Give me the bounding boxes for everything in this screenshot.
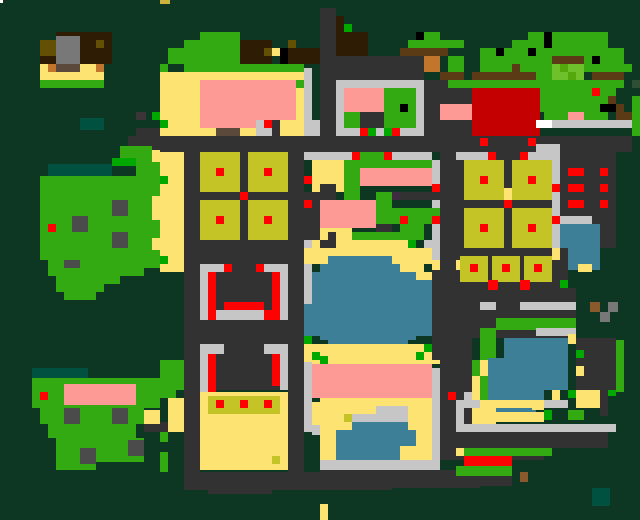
map-tile-sand (184, 72, 304, 80)
map-tile-red (264, 216, 272, 224)
map-tile-sand (336, 240, 392, 248)
map-tile-grass (56, 276, 120, 284)
map-tile-red (216, 400, 224, 408)
map-tile-wood (288, 48, 320, 64)
map-tile-green2 (160, 176, 168, 184)
map-tile-pink (360, 168, 432, 186)
map-tile-mdgreen (560, 64, 568, 72)
map-tile-grass (136, 158, 152, 176)
map-tile-road (144, 424, 160, 432)
map-tile-red (224, 302, 264, 310)
map-tile-sbrown (608, 96, 616, 104)
map-tile-sand (392, 240, 408, 248)
map-tile-road (320, 184, 336, 200)
map-tile-grass (184, 40, 240, 48)
map-tile-grass (40, 176, 160, 260)
map-tile-road (440, 260, 456, 360)
map-tile-sand (152, 238, 160, 250)
map-tile-swalk (456, 152, 488, 160)
map-tile-sand (312, 240, 320, 248)
map-tile-grass (64, 292, 96, 300)
map-tile-red (600, 184, 608, 192)
map-tile-white (536, 120, 552, 128)
map-tile-purple (392, 192, 400, 200)
map-tile-grass (408, 40, 464, 48)
map-tile-red (216, 216, 224, 224)
map-tile-grass (200, 32, 240, 40)
map-tile-road (320, 240, 336, 248)
map-tile-tan (424, 56, 440, 72)
map-tile-sand (456, 448, 464, 456)
map-tile-swalk (280, 344, 288, 390)
map-tile-swalk (392, 152, 432, 160)
map-tile-red (400, 216, 408, 224)
map-tile-pink (440, 104, 472, 120)
map-tile-sbrown (624, 112, 632, 120)
map-tile-swalk (216, 310, 264, 320)
map-tile-grass (160, 432, 168, 442)
map-tile-swalk (352, 414, 408, 422)
map-tile-olive (40, 40, 56, 56)
map-tile-red (216, 168, 224, 176)
map-tile-red (568, 168, 584, 176)
map-tile-green2 (152, 112, 160, 120)
map-tile-swalk (336, 80, 424, 88)
map-tile-road (480, 476, 512, 486)
map-tile-green2 (320, 356, 328, 364)
map-tile-grass (160, 452, 168, 472)
map-tile-sand (576, 390, 600, 408)
map-tile-gray (56, 36, 80, 64)
map-tile-black (496, 48, 504, 56)
map-tile-red (392, 128, 400, 136)
map-tile-olive (96, 40, 104, 48)
map-tile-door (216, 128, 240, 136)
map-tile-red (568, 200, 584, 208)
map-tile-sand (532, 400, 544, 410)
map-tile-gray (608, 302, 618, 312)
map-tile-green2 (312, 352, 320, 360)
map-tile-sbrown (512, 64, 520, 72)
map-tile-grass (480, 64, 512, 72)
map-tile-red (470, 264, 478, 272)
map-tile-swalk (560, 216, 592, 224)
map-tile-water (304, 304, 432, 336)
map-tile-pink (320, 200, 376, 228)
map-tile-teal (592, 488, 610, 506)
map-tile-road (312, 192, 320, 240)
map-tile-pink (568, 112, 584, 120)
map-tile-swalk (536, 144, 560, 152)
map-tile-sand (400, 264, 424, 272)
map-tile-grass (632, 96, 640, 136)
map-tile-red (304, 176, 312, 184)
map-tile-red (256, 264, 264, 272)
map-tile-road (400, 192, 440, 200)
map-tile-sand (304, 256, 328, 264)
map-tile-red (528, 176, 536, 184)
map-tile-olive (288, 40, 296, 48)
map-tile-swalk (464, 400, 480, 408)
map-tile-sand (336, 184, 344, 192)
map-tile-black (528, 48, 536, 56)
map-tile-green2 (608, 390, 616, 396)
map-tile-red (272, 354, 280, 386)
map-tile-red (264, 400, 272, 408)
map-tile-road (272, 120, 280, 128)
map-tile-grass (48, 268, 144, 276)
map-tile-grass (536, 72, 552, 80)
map-tile-swalk (376, 406, 408, 414)
map-tile-green2 (160, 256, 168, 264)
map-tile-sbrown (616, 104, 624, 120)
map-tile-tan (96, 64, 104, 72)
map-tile-black (544, 32, 552, 48)
map-tile-red (224, 264, 232, 272)
map-tile-sand (272, 48, 280, 56)
map-tile-tree (72, 216, 88, 232)
map-tile-red (240, 192, 248, 200)
map-tile-sand (320, 228, 352, 240)
map-tile-water (320, 264, 400, 272)
map-tile-grass (456, 448, 552, 456)
map-tile-pink (312, 364, 432, 398)
map-tile-sand (504, 188, 512, 200)
map-tile-grass (56, 284, 104, 292)
map-tile-swalk (304, 128, 320, 136)
map-tile-black (600, 104, 616, 112)
map-tile-swalk (552, 120, 632, 128)
map-tile-water (312, 272, 424, 280)
map-tile-byel (344, 414, 352, 422)
map-tile-grass (568, 410, 584, 420)
map-tile-sand (480, 360, 488, 376)
map-tile-sand (296, 88, 304, 120)
map-tile-sand (152, 196, 160, 220)
map-tile-red (520, 280, 530, 290)
map-tile-swalk (304, 362, 312, 432)
map-tile-red (480, 176, 488, 184)
map-tile-red (208, 310, 216, 320)
map-tile-red (432, 184, 440, 192)
map-tile-tree (112, 232, 128, 248)
map-tile-swalk (424, 240, 432, 248)
map-tile-grass (480, 56, 552, 64)
map-tile-road (184, 240, 320, 260)
map-tile-road (272, 128, 280, 136)
map-tile-door (56, 64, 80, 72)
map-tile-green2 (368, 128, 376, 136)
map-tile-green2 (416, 352, 424, 360)
map-tile-red (240, 400, 248, 408)
map-tile-pink (200, 80, 296, 120)
map-tile-road (160, 422, 168, 432)
map-tile-lbrown (590, 302, 600, 312)
map-tile-sbrown (552, 56, 584, 64)
map-tile-swalk (416, 88, 424, 128)
map-tile-red (488, 280, 498, 290)
map-tile-road (376, 224, 392, 232)
map-tile-swalk (256, 128, 272, 136)
map-tile-swalk (200, 264, 208, 320)
map-tile-sbrown (592, 72, 624, 80)
map-tile-road (456, 338, 472, 364)
map-tile-red (464, 456, 512, 466)
map-tile-sbrown (480, 72, 536, 80)
map-tile-swalk (544, 400, 568, 408)
map-tile-tree (112, 200, 128, 216)
map-tile-teal (48, 164, 112, 176)
map-tile-teal (80, 118, 104, 130)
map-tile-red (432, 216, 440, 224)
map-tile-gold (160, 0, 170, 4)
map-tile-sand (320, 504, 328, 520)
map-tile-grass (448, 80, 624, 88)
map-tile-sand (160, 128, 216, 136)
map-tile-sand (336, 248, 432, 256)
map-tile-pink (64, 384, 136, 405)
map-tile-green2 (424, 344, 432, 352)
map-tile-grass (544, 112, 568, 120)
map-tile-green2 (408, 240, 416, 248)
map-tile-tan (48, 64, 56, 72)
map-tile-grass (456, 466, 512, 476)
map-tile-road (432, 270, 440, 360)
map-tile-swalk (304, 264, 312, 304)
map-tile-lbrown (520, 472, 528, 482)
map-tile-sand (280, 128, 304, 136)
map-tile-red (264, 120, 272, 128)
map-tile-green2 (344, 24, 352, 32)
map-tile-water (328, 256, 392, 264)
map-tile-grass (40, 408, 144, 424)
map-tile-grass (480, 328, 496, 360)
map-tile-water (336, 430, 416, 446)
map-tile-sbrown (400, 48, 448, 56)
map-tile-red (448, 392, 456, 400)
map-tile-red (352, 152, 360, 160)
map-tile-red (592, 88, 600, 96)
map-tile-road (208, 488, 272, 494)
map-tile-red (504, 200, 512, 208)
map-tile-bg (160, 272, 184, 360)
map-tile-grass (48, 424, 136, 438)
map-tile-road (184, 390, 200, 472)
map-tile-water (352, 422, 408, 430)
map-tile-swalk (256, 120, 264, 128)
map-tile-sand (168, 398, 184, 432)
map-tile-grass (424, 32, 440, 40)
map-tile-road (496, 152, 520, 160)
map-tile-red (360, 128, 368, 136)
map-tile-road (600, 390, 608, 416)
map-tile-red (600, 168, 608, 176)
map-tile-red (600, 200, 608, 208)
map-tile-water (336, 446, 400, 460)
map-tile-road (584, 432, 608, 448)
map-tile-sand (144, 410, 160, 424)
map-tile-grass (472, 360, 480, 376)
map-tile-swalk (320, 460, 440, 470)
map-tile-byel (272, 456, 280, 464)
map-tile-road (360, 112, 384, 128)
map-tile-sand (168, 120, 200, 128)
map-tile-sand (312, 160, 320, 192)
map-tile-olive (264, 48, 272, 56)
map-tile-sand (432, 260, 440, 270)
map-tile-red (264, 168, 272, 176)
map-tile-road (320, 56, 424, 80)
map-tile-grass (528, 32, 608, 40)
map-tile-red (552, 216, 560, 224)
map-tile-road (320, 470, 392, 490)
map-tile-swalk (304, 68, 312, 130)
map-tile-red (502, 264, 510, 272)
map-tile-water (504, 338, 568, 390)
map-tile-swalk (304, 152, 352, 160)
map-tile-grass (616, 340, 624, 392)
map-tile-pink (200, 120, 256, 128)
map-tile-red (520, 152, 528, 160)
map-tile-sand (568, 334, 576, 344)
map-tile-grass (40, 80, 104, 88)
map-tile-green2 (112, 158, 136, 166)
map-tile-sand (480, 400, 532, 408)
map-tile-grass (520, 64, 552, 72)
map-tile-red (264, 310, 272, 320)
map-tile-sand (552, 248, 560, 260)
map-tile-green2 (384, 128, 392, 136)
map-tile-swalk (312, 425, 320, 435)
map-tile-gray (600, 312, 610, 322)
map-tile-sand (280, 120, 304, 128)
map-tile-grass (360, 152, 384, 160)
map-tile-sand (416, 272, 432, 280)
map-tile-swalk (280, 264, 288, 320)
map-tile-red (48, 224, 56, 232)
map-tile-sand (160, 152, 184, 272)
map-tile-sand (312, 402, 320, 425)
map-tile-red (480, 224, 488, 232)
map-tile-green2 (568, 390, 576, 398)
map-tile-grass (512, 40, 608, 48)
map-tile-grass (168, 48, 240, 64)
map-tile-tree (80, 448, 96, 464)
map-tile-grass (344, 160, 360, 200)
map-tile-red (528, 224, 536, 232)
map-tile-grass (352, 232, 424, 240)
map-tile-grass (584, 64, 632, 72)
map-tile-mdgreen (568, 72, 576, 80)
map-tile-road (328, 232, 336, 240)
map-tile-swalk (456, 400, 464, 432)
map-tile-red (384, 152, 392, 160)
map-tile-water (488, 358, 504, 402)
map-tile-sand (552, 390, 560, 400)
map-tile-grass (360, 160, 432, 168)
map-tile-graygreen (632, 80, 640, 88)
map-tile-white (0, 0, 3, 3)
map-tile-black (416, 32, 424, 40)
map-tile-green2 (576, 350, 584, 358)
map-tile-road (320, 80, 336, 136)
map-tile-black (592, 56, 600, 64)
map-tile-sand (576, 366, 584, 376)
map-tile-swalk (520, 302, 576, 310)
map-tile-dkgray (136, 112, 146, 120)
map-tile-sand (392, 256, 432, 264)
map-tile-water (312, 280, 432, 304)
map-tile-tree (128, 440, 144, 456)
map-tile-swalk (432, 390, 440, 470)
map-tile-grass (344, 112, 360, 128)
map-tile-grass (540, 88, 616, 96)
map-tile-black (400, 104, 408, 112)
map-tile-grass (160, 360, 184, 390)
map-tile-swalk (464, 424, 616, 432)
map-tile-sand (578, 264, 592, 272)
map-tile-grass (584, 56, 624, 64)
map-tile-red (480, 138, 488, 146)
map-tile-road (576, 338, 616, 392)
map-tile-sand (152, 150, 160, 162)
map-tile-green2 (160, 120, 168, 128)
map-tile-sand (240, 128, 256, 136)
map-tile-swalk (552, 152, 560, 248)
map-tile-tree (64, 408, 80, 424)
map-tile-sbrown (440, 72, 464, 80)
map-tile-grass (184, 64, 296, 72)
map-tile-grass (540, 96, 608, 104)
map-tile-red (208, 354, 216, 392)
map-tile-grass (160, 64, 168, 72)
map-tile-sand (480, 412, 544, 422)
map-tile-grass (480, 376, 488, 400)
map-tile-wood (40, 56, 56, 64)
map-tile-sand (320, 160, 344, 184)
map-tile-grass (584, 112, 608, 120)
map-tile-road (616, 136, 632, 152)
map-tile-black (280, 48, 288, 64)
map-tile-red (534, 264, 542, 272)
map-tile-red (272, 272, 280, 320)
map-tile-sand (304, 248, 336, 256)
map-tile-swalk (312, 120, 320, 128)
map-tile-grass (540, 104, 600, 112)
map-tile-red (568, 184, 584, 192)
map-tile-red (304, 200, 312, 208)
map-tile-pink (344, 88, 384, 112)
map-tile-swalk (480, 302, 496, 310)
map-tile-swalk (464, 392, 472, 400)
map-tile-grass (160, 390, 176, 398)
map-tile-red (528, 138, 536, 146)
map-tile-red (40, 392, 48, 400)
game-map[interactable] (0, 0, 640, 520)
map-tile-road (136, 128, 160, 136)
map-tile-dred (472, 88, 540, 136)
map-tile-swalk (336, 128, 424, 136)
map-tile-swalk (304, 240, 312, 248)
map-tile-green2 (560, 280, 568, 288)
map-tile-road (288, 390, 304, 472)
map-tile-red (552, 184, 560, 192)
map-tile-tree (112, 408, 128, 424)
map-tile-green2 (304, 336, 312, 344)
map-tile-green2 (544, 410, 552, 420)
map-tile-red (488, 152, 496, 160)
